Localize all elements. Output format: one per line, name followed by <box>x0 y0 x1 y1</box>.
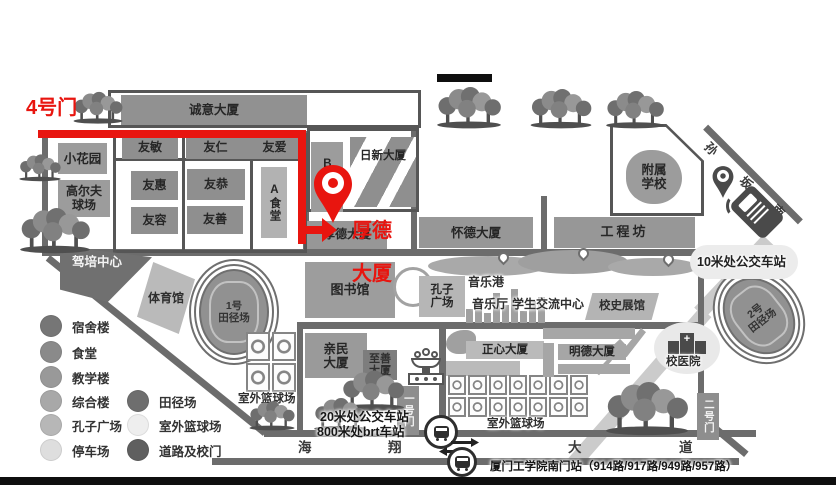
building-youmin: 友敏 <box>122 136 178 159</box>
building-mingde-bar-left <box>543 343 554 377</box>
legend-label: 室外篮球场 <box>159 416 222 435</box>
legend-label: 综合楼 <box>72 392 110 411</box>
label-brt800: 800米处brt车站 <box>317 426 405 440</box>
transfer-arrow-right-head <box>471 438 479 447</box>
label-road-char-da: 大 <box>568 441 582 456</box>
label-station: 厦门工学院南门站（914路/917路/949路/957路） <box>490 461 737 474</box>
legend-swatch <box>127 439 149 461</box>
zhengxin-annex <box>446 361 520 376</box>
label-road-char-dao: 道 <box>679 441 693 456</box>
legend-swatch <box>40 366 62 388</box>
destination-annotation: 厚德 大厦 <box>352 199 392 285</box>
legend-item-dorm: 宿舍楼 <box>40 315 110 337</box>
label-gym: 体育馆 <box>148 292 184 305</box>
legend-item-canteen: 食堂 <box>40 341 97 363</box>
building-rixin: 日新大厦 <box>350 137 416 207</box>
label-road-char-xiang: 翔 <box>388 441 402 456</box>
legend-swatch <box>127 414 149 436</box>
building-history-hall: 校史展馆 <box>585 293 659 320</box>
legend-label: 宿舍楼 <box>72 317 110 336</box>
trees-cluster <box>72 84 124 132</box>
dorm-divider-v1 <box>182 133 185 251</box>
legend-label: 停车场 <box>72 441 110 460</box>
legend-label: 田径场 <box>159 392 197 411</box>
building-yourong: 友容 <box>131 207 178 234</box>
label-youren: 友仁 <box>203 141 227 154</box>
legend-label: 孔子广场 <box>72 416 122 435</box>
top-black-bar <box>437 74 492 82</box>
building-fushu: 附属学校 <box>626 150 682 204</box>
trees-cluster <box>602 382 692 436</box>
building-huaide: 怀德大厦 <box>419 217 533 248</box>
legend-swatch <box>127 390 149 412</box>
legend-swatch <box>40 341 62 363</box>
building-gongchengfang: 工程坊 <box>554 217 695 248</box>
building-mingde-bar-top <box>543 328 635 339</box>
legend-item-kongzi: 孔子广场 <box>40 414 122 436</box>
trees-cluster <box>596 91 674 129</box>
basketball-courts-left <box>246 332 296 392</box>
building-kongzi: 孔子广场 <box>419 276 465 317</box>
building-youren-youai: 友仁 友爱 <box>186 136 304 159</box>
building-youshan: 友善 <box>187 206 243 234</box>
legend-swatch <box>40 439 62 461</box>
campus-map: 诚意大厦 小花园 高尔夫球场 友敏 友仁 友爱 友惠 友恭 友容 友善 A食堂 … <box>0 0 836 485</box>
legend-item-track: 田径场 <box>127 390 197 412</box>
label-music-port: 音乐港 <box>468 276 504 289</box>
transfer-arrow-right <box>451 441 473 444</box>
water-blob <box>608 258 698 276</box>
bus-icon-lower <box>447 447 477 477</box>
legend-label: 道路及校门 <box>159 441 222 460</box>
busstop-pin-icon <box>711 165 735 199</box>
fountain-icon <box>408 351 444 391</box>
trees-cluster <box>248 400 296 432</box>
trees-cluster <box>522 89 600 129</box>
label-basketball-right: 室外篮球场 <box>487 418 545 431</box>
label-jiapei: 驾培中心 <box>72 256 122 270</box>
legend-swatch <box>40 390 62 412</box>
building-yougong: 友恭 <box>187 169 245 200</box>
building-zhengxin: 正心大厦 <box>466 341 544 359</box>
legend-swatch <box>40 315 62 337</box>
route-line-top <box>38 130 306 138</box>
label-bus10: 10米处公交车站 <box>697 256 786 270</box>
basketball-courts-right <box>448 375 588 417</box>
legend-item-roads: 道路及校门 <box>127 439 222 461</box>
destination-pin-icon <box>312 163 354 225</box>
legend-item-basketball: 室外篮球场 <box>127 414 222 436</box>
label-road-char-hai: 海 <box>298 441 312 456</box>
route-arrow-shaft <box>298 226 324 234</box>
label-student-center: 学生交流中心 <box>512 298 584 311</box>
label-history-hall: 校史展馆 <box>599 300 645 313</box>
building-chengyi: 诚意大厦 <box>121 95 307 125</box>
legend-swatch <box>40 414 62 436</box>
label-hospital: 校医院 <box>666 356 701 369</box>
bus-station-building <box>729 184 786 241</box>
road-mid-horizontal <box>297 322 704 329</box>
building-gym: 体育馆 <box>137 262 195 334</box>
label-bus20: 20米处公交车站 <box>320 411 409 425</box>
building-canteen-a: A食堂 <box>261 167 287 238</box>
trees-cluster <box>18 150 62 186</box>
label-youai: 友爱 <box>262 141 286 154</box>
legend-item-complex: 综合楼 <box>40 390 110 412</box>
bottom-black-bar <box>0 477 836 485</box>
legend-item-parking: 停车场 <box>40 439 110 461</box>
legend-item-teaching: 教学楼 <box>40 366 110 388</box>
legend-label: 食堂 <box>72 343 97 362</box>
building-youhui: 友惠 <box>131 171 178 200</box>
road-huaide-gap <box>541 196 547 251</box>
trees-cluster <box>427 87 511 129</box>
gate-2: 二号门 <box>697 393 719 440</box>
building-garden: 小花园 <box>58 143 107 174</box>
gate4-annotation: 4号门 <box>26 98 77 120</box>
label-music-hall: 音乐厅 <box>472 298 508 311</box>
legend-label: 教学楼 <box>72 368 110 387</box>
trees-cluster <box>18 206 92 256</box>
hospital-icon: + <box>664 330 710 354</box>
